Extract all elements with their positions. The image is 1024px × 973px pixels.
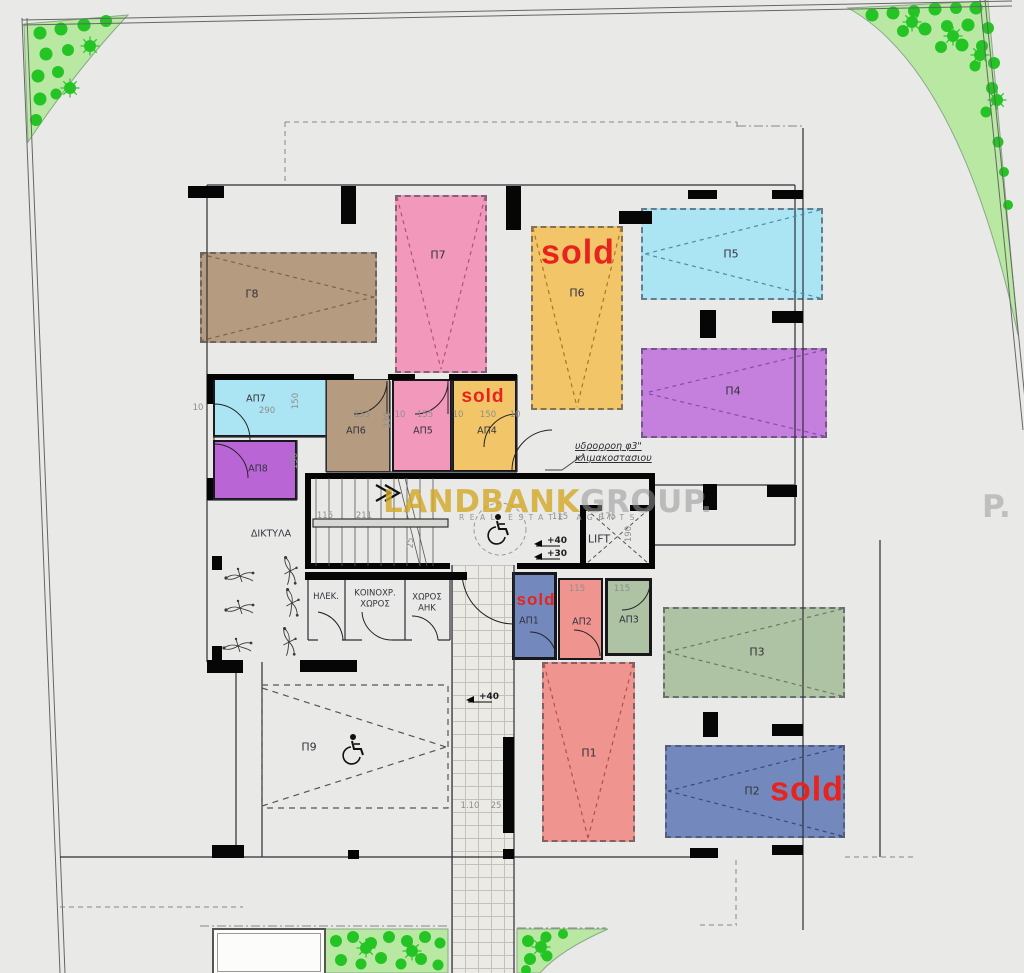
label-storage-ap5: ΑΠ5 (413, 426, 433, 437)
label-parking-p1: Π1 (581, 747, 596, 760)
column (619, 211, 652, 224)
level-core-lower: +30 (547, 549, 567, 559)
dim: 115 (614, 584, 630, 594)
floor-plan-canvas: LANDBANKGROUP. REAL ESTATE AGENTS P. Γ8 … (0, 0, 1024, 973)
column (503, 849, 514, 859)
column (341, 186, 356, 224)
column (212, 845, 244, 858)
label-parking-p2: Π2 (744, 785, 759, 798)
label-parking-p4: Π4 (725, 385, 740, 398)
plant-sketches (222, 554, 302, 657)
label-storage-ap2: ΑΠ2 (572, 617, 592, 628)
dim: 10 (510, 410, 521, 420)
dim: 115 (569, 584, 585, 594)
dim: 190 (624, 526, 634, 542)
dim: 175 (600, 512, 616, 522)
dim: 230 (383, 412, 393, 428)
label-storage-ap6: ΑΠ6 (346, 426, 366, 437)
column (700, 310, 716, 338)
dim: 10 (453, 410, 464, 420)
level-walkway: +40 (479, 692, 499, 702)
label-parking-p6: Π6 (569, 287, 584, 300)
wall-segment (503, 737, 514, 833)
dim: 211 (356, 511, 372, 521)
label-room-lift: LIFT (588, 533, 610, 546)
label-storage-ap4: ΑΠ4 (477, 426, 497, 437)
sold-marker-ap4: sold (461, 386, 504, 408)
dim: 150 (291, 393, 301, 409)
downpipe-note: υδρορροη φ3" κλιμακοστασιου (575, 441, 652, 466)
parking-space-p9-outline (262, 685, 448, 808)
label-parking-p3: Π3 (749, 646, 764, 659)
wheelchair-icon (488, 514, 508, 544)
label-storage-ap7: ΑΠ7 (246, 394, 266, 405)
dim: 150 (480, 410, 496, 420)
label-room-ahk: ΧΩΡΟΣ ΑΗΚ (412, 592, 442, 613)
column (703, 712, 718, 737)
dim: 155 (354, 410, 370, 420)
wall-segment (305, 572, 467, 580)
column (772, 311, 803, 323)
label-parking-p9: Π9 (301, 741, 316, 754)
label-room-elek: ΗΛΕΚ. (313, 592, 339, 602)
column (767, 485, 797, 497)
stair-direction-arrow (376, 485, 399, 501)
dim: 155 (417, 410, 433, 420)
label-room-networks: ΔΙΚΤΥΛΑ (251, 529, 291, 540)
column (688, 190, 717, 199)
sold-marker-p2: sold (770, 771, 844, 810)
column (772, 845, 803, 855)
column (772, 724, 803, 736)
sold-marker-ap1: sold (517, 590, 556, 610)
parking-chevrons (200, 197, 842, 838)
dim: 10 (395, 410, 406, 420)
label-storage-ap1: ΑΠ1 (519, 616, 539, 627)
column (703, 484, 717, 510)
column (207, 660, 243, 673)
stair-handrail (313, 519, 448, 527)
column (348, 850, 359, 859)
wall-segment (300, 660, 357, 672)
column (506, 186, 521, 230)
dim: 1.10 (461, 801, 480, 811)
column (188, 186, 224, 198)
label-room-common: ΚΟΙΝΟΧΡ. ΧΩΡΟΣ (354, 588, 395, 609)
sold-marker-p6: sold (541, 234, 615, 273)
dim: 115 (317, 511, 333, 521)
dim: 150 (290, 453, 300, 469)
dim: 25 (406, 538, 416, 549)
dim: 115 (552, 512, 568, 522)
level-core-upper: +40 (547, 536, 567, 546)
label-storage-ap3: ΑΠ3 (619, 615, 639, 626)
staircase (313, 478, 448, 566)
column (212, 646, 222, 660)
column (212, 556, 222, 570)
column (690, 848, 718, 858)
column (772, 190, 803, 199)
label-storage-ap8: ΑΠ8 (248, 464, 268, 475)
label-parking-p7: Π7 (430, 249, 445, 262)
dim: 25 (491, 801, 502, 811)
label-parking-g8: Γ8 (245, 288, 258, 301)
label-parking-p5: Π5 (723, 248, 738, 261)
dim: 290 (259, 406, 275, 416)
dim: 10 (193, 403, 204, 413)
wheelchair-icon (343, 734, 363, 764)
